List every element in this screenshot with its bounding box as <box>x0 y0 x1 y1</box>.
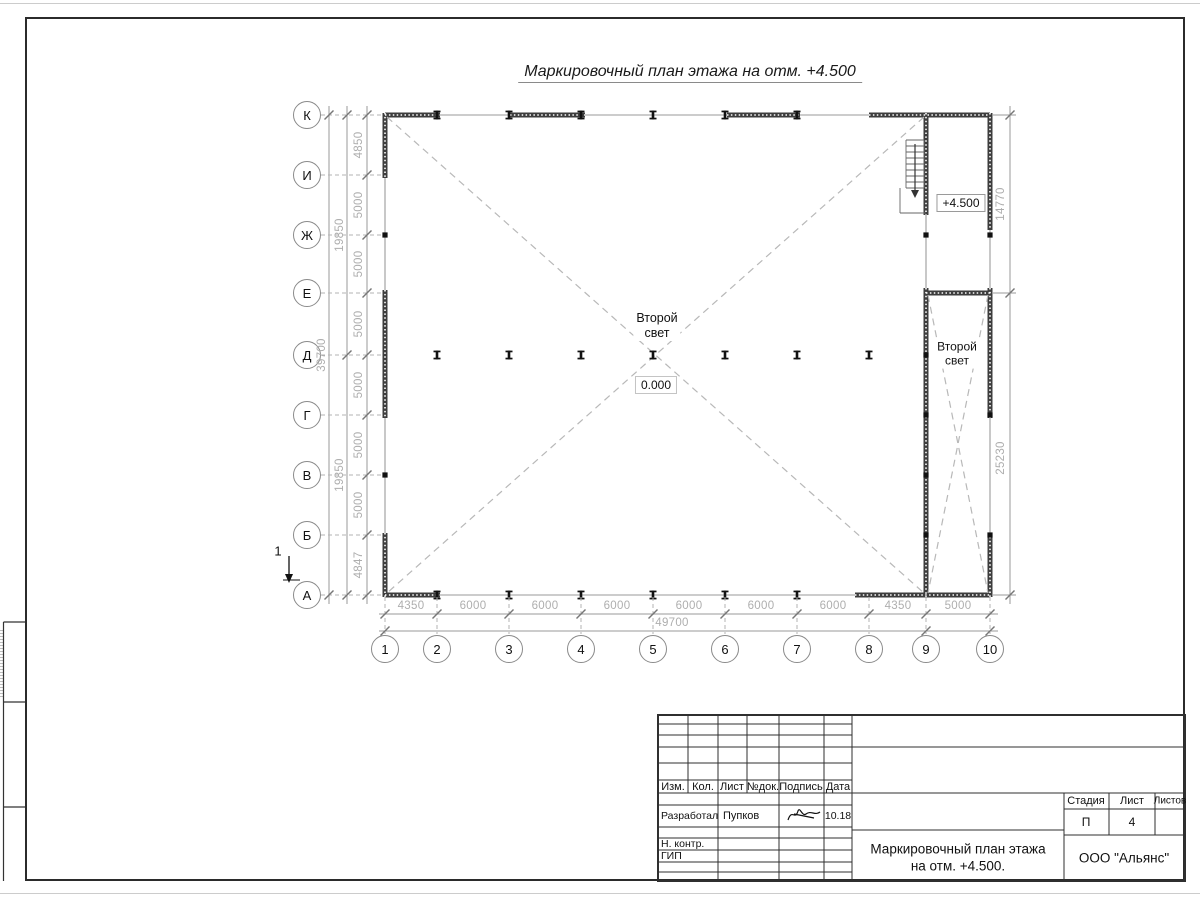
tb-role-ncontr: Н. контр. <box>661 838 704 850</box>
dim-bottom: 6000 <box>676 600 703 612</box>
axis-col-6: 6 <box>711 635 739 663</box>
plan-linework <box>0 0 1200 900</box>
dim-left: 5000 <box>353 311 365 338</box>
dim-right: 25230 <box>995 441 1007 474</box>
axis-col-3: 3 <box>495 635 523 663</box>
tb-sheet-label: Лист <box>1120 795 1144 807</box>
axis-col-2: 2 <box>423 635 451 663</box>
dim-left: 5000 <box>353 432 365 459</box>
tb-header-izm: Изм. <box>661 781 685 793</box>
stair <box>900 140 926 213</box>
dim-bottom-total: 49700 <box>655 617 688 629</box>
dim-bottom: 6000 <box>460 600 487 612</box>
dim-left: 4850 <box>353 132 365 159</box>
tb-name-developed: Пупков <box>723 810 759 822</box>
signature-icon <box>784 805 822 825</box>
axis-row-A: А <box>293 581 321 609</box>
dim-bottom: 6000 <box>604 600 631 612</box>
dim-left-subtotal: 19850 <box>334 458 346 491</box>
tb-doc-title-line1: Маркировочный план этажа <box>870 842 1045 857</box>
tb-sheets-label: Листов <box>1154 796 1187 807</box>
tb-header-podpis: Подпись <box>779 781 823 793</box>
section-arrow <box>283 556 300 583</box>
axis-col-4: 4 <box>567 635 595 663</box>
axis-col-5: 5 <box>639 635 667 663</box>
axis-row-K: К <box>293 101 321 129</box>
dim-right: 14770 <box>995 187 1007 220</box>
axis-col-8: 8 <box>855 635 883 663</box>
dimension-lines <box>329 106 1016 631</box>
tb-role-gip: ГИП <box>661 850 682 862</box>
tb-doc-title-line2: на отм. +4.500. <box>911 859 1005 874</box>
dim-left-subtotal: 19850 <box>334 218 346 251</box>
dim-left-total: 39700 <box>316 338 328 371</box>
wall-stipple <box>385 113 990 597</box>
tb-header-data: Дата <box>826 781 850 793</box>
second-light-label-main: Второй свет <box>633 311 680 341</box>
dim-bottom: 5000 <box>945 600 972 612</box>
dim-left: 5000 <box>353 492 365 519</box>
tb-stage-label: Стадия <box>1067 795 1105 807</box>
tb-header-ndok: №док. <box>747 781 779 793</box>
dim-bottom: 6000 <box>820 600 847 612</box>
second-light-label-right: Второй свет <box>934 340 980 369</box>
elevation-zero-label: 0.000 <box>635 376 677 394</box>
axis-row-V: В <box>293 461 321 489</box>
axis-col-10: 10 <box>976 635 1004 663</box>
dim-left: 5000 <box>353 372 365 399</box>
dim-bottom: 4350 <box>885 600 912 612</box>
axis-row-E: Е <box>293 279 321 307</box>
section-mark-label: 1 <box>274 544 281 559</box>
dim-left: 5000 <box>353 251 365 278</box>
axis-col-7: 7 <box>783 635 811 663</box>
tb-header-list: Лист <box>720 781 744 793</box>
axis-row-Zh: Ж <box>293 221 321 249</box>
tb-date-developed: 10.18 <box>825 810 851 822</box>
tb-company: ООО "Альянс" <box>1079 851 1169 866</box>
walls <box>385 113 990 597</box>
dim-bottom: 6000 <box>748 600 775 612</box>
tb-header-kol: Кол. <box>692 781 714 793</box>
wall-axis-lines <box>385 115 990 595</box>
dim-left: 5000 <box>353 192 365 219</box>
left-stamp-strip <box>4 622 26 881</box>
axis-col-1: 1 <box>371 635 399 663</box>
columns <box>382 111 992 600</box>
axis-row-I: И <box>293 161 321 189</box>
dim-bottom: 4350 <box>398 600 425 612</box>
elevation-upper-label: +4.500 <box>936 194 985 212</box>
axis-leaders <box>321 115 990 634</box>
dim-left: 4847 <box>353 552 365 579</box>
axis-row-B: Б <box>293 521 321 549</box>
tb-stage-value: П <box>1082 815 1091 829</box>
dim-bottom: 6000 <box>532 600 559 612</box>
axis-col-9: 9 <box>912 635 940 663</box>
axis-row-G: Г <box>293 401 321 429</box>
second-light-diagonals <box>387 117 988 593</box>
tb-role-developed: Разработал <box>661 810 718 822</box>
drawing-sheet: Маркировочный план этажа на отм. +4.500 <box>0 0 1200 900</box>
tb-sheet-value: 4 <box>1129 815 1136 829</box>
